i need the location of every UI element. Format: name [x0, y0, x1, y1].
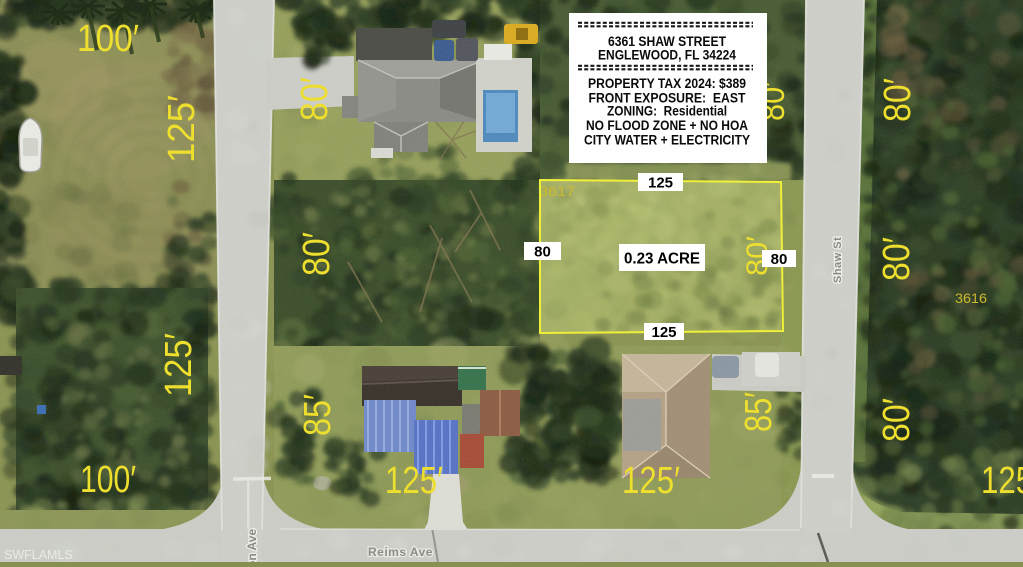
svg-text:Shaw St: Shaw St	[832, 237, 844, 283]
svg-text:3616: 3616	[955, 290, 987, 306]
svg-text:125: 125	[648, 174, 673, 191]
svg-text:3617: 3617	[539, 183, 575, 199]
svg-text:100′: 100′	[77, 18, 139, 60]
svg-text:Reims Ave: Reims Ave	[368, 545, 433, 559]
svg-text:85′: 85′	[297, 394, 339, 436]
svg-text:125′: 125′	[385, 460, 443, 502]
svg-text:ENGLEWOOD, FL 34224: ENGLEWOOD, FL 34224	[598, 48, 736, 63]
svg-text:125′: 125′	[622, 460, 680, 502]
svg-text:80′: 80′	[876, 398, 918, 442]
svg-text:125′: 125′	[161, 95, 203, 163]
svg-text:125′: 125′	[158, 333, 200, 397]
svg-text:CITY WATER + ELECTRICITY: CITY WATER + ELECTRICITY	[584, 132, 750, 147]
svg-text:85′: 85′	[738, 392, 780, 432]
svg-text:NO FLOOD ZONE + NO HOA: NO FLOOD ZONE + NO HOA	[586, 118, 748, 133]
svg-text:PROPERTY TAX 2024: $389: PROPERTY TAX 2024: $389	[588, 76, 746, 91]
svg-text:80′: 80′	[294, 77, 336, 121]
svg-text:80: 80	[534, 243, 551, 260]
svg-text:80′: 80′	[296, 232, 338, 276]
svg-text:ZONING: Residential: ZONING: Residential	[607, 104, 727, 119]
svg-text:ton Ave: ton Ave	[245, 529, 259, 562]
svg-text:0.23 ACRE: 0.23 ACRE	[624, 250, 700, 267]
svg-text:125: 125	[651, 324, 676, 341]
svg-text:SWFLAMLS: SWFLAMLS	[4, 548, 73, 562]
svg-text:100′: 100′	[80, 459, 136, 501]
svg-text:80′: 80′	[876, 237, 918, 281]
svg-text:125′: 125′	[981, 460, 1023, 502]
svg-text:80′: 80′	[877, 78, 919, 122]
svg-text:80: 80	[771, 251, 788, 268]
